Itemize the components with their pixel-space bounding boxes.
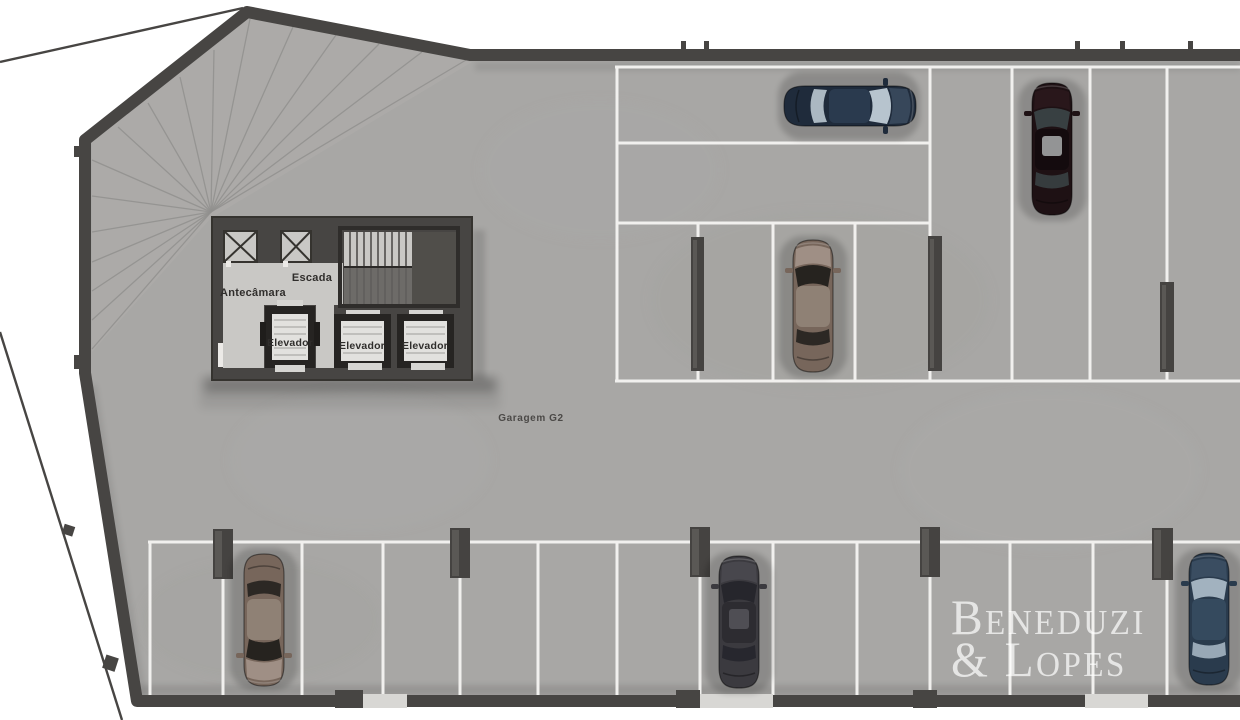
column [1152,528,1173,580]
elevator-2-label: Elevador [339,340,385,352]
shaft-door-mark [283,261,288,267]
column [213,529,233,579]
shaft-1 [224,231,257,262]
car-steel-blue-sedan [1175,549,1240,691]
column [691,237,704,371]
wall-opening [363,694,407,708]
car-brown-suv-upper [779,236,847,378]
car-maroon-sedan [1018,79,1086,221]
watermark-line-2: & Lopes [951,638,1146,680]
elevator-1 [260,300,320,372]
wall-tab [74,146,86,157]
elevator-1-label: Elevador [267,337,313,349]
column [1160,282,1174,372]
column [920,527,940,577]
shaft-door-mark [226,261,231,267]
stairs-label: Escada [292,272,333,284]
core-door [218,343,223,367]
brand-watermark: Beneduzi & Lopes [951,596,1146,680]
garage-level-label: Garagem G2 [498,413,563,424]
wall-pier [676,690,700,708]
car-charcoal-sedan [705,552,773,694]
elevator-3-label: Elevador [402,340,448,352]
wall-pier [335,690,363,708]
wall-opening [700,694,773,708]
column [928,236,942,371]
wall-tab [74,355,86,369]
stairs [340,228,458,306]
column [450,528,470,578]
antechamber-label: Antecâmara [220,287,287,299]
boundary-tab [102,654,119,671]
antechamber-floor [223,305,264,368]
wall-pier [913,690,937,708]
wall-opening [1085,694,1148,708]
garage-floorplan: Escada Antecâmara Elevador Elevador Elev… [0,0,1240,720]
shaft-2 [281,231,311,262]
wall-ticks [334,24,1193,49]
car-blue-sedan [778,72,920,140]
car-brown-suv-lower [230,548,298,690]
